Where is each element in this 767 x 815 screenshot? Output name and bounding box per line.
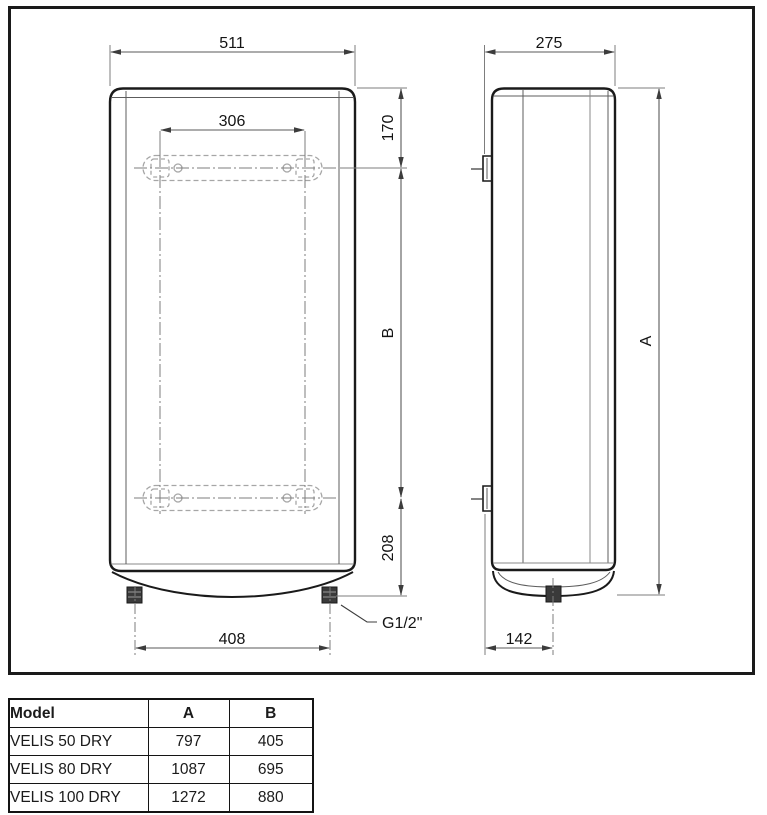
dim-a-value: 1272 — [148, 784, 229, 813]
dimension-drawing-page: 511 306 170 B 208 408 G1/2" — [0, 0, 767, 815]
dim-a-value: 797 — [148, 728, 229, 756]
column-header-model: Model — [9, 699, 148, 728]
model-dimensions-table: Model A B VELIS 50 DRY 797 405 VELIS 80 … — [8, 698, 314, 813]
pipe-offset-dim-label: 142 — [506, 631, 533, 648]
table-header-row: Model A B — [9, 699, 313, 728]
model-name: VELIS 100 DRY — [9, 784, 148, 813]
column-header-b: B — [229, 699, 313, 728]
side-upper-wall-bracket — [471, 156, 491, 181]
technical-drawing: 511 306 170 B 208 408 G1/2" — [0, 0, 767, 692]
front-width-dim-label: 511 — [219, 35, 245, 52]
side-view — [471, 89, 615, 603]
side-height-dim-label: A — [638, 335, 655, 346]
side-lower-wall-bracket — [471, 486, 491, 511]
front-body-outline — [110, 89, 355, 572]
column-header-a: A — [148, 699, 229, 728]
side-body-outline — [492, 89, 615, 571]
pipe-thread-callout: G1/2" — [382, 615, 422, 632]
side-bottom-inner-curve — [498, 572, 610, 587]
table-row: VELIS 50 DRY 797 405 — [9, 728, 313, 756]
side-depth-dim-label: 275 — [536, 35, 563, 52]
table-row: VELIS 80 DRY 1087 695 — [9, 756, 313, 784]
table-row: VELIS 100 DRY 1272 880 — [9, 784, 313, 813]
top-to-bracket-dim-label: 170 — [380, 115, 397, 142]
front-bottom-curve — [112, 572, 353, 597]
bracket-to-bottom-dim-label: 208 — [380, 535, 397, 562]
dim-b-value: 695 — [229, 756, 313, 784]
pipe-thread-leader — [341, 605, 377, 622]
dim-b-value: 880 — [229, 784, 313, 813]
bracket-spacing-dim-label: 306 — [219, 113, 246, 130]
pipe-spacing-dim-label: 408 — [219, 631, 246, 648]
model-name: VELIS 50 DRY — [9, 728, 148, 756]
dim-b-value: 405 — [229, 728, 313, 756]
bracket-span-dim-label: B — [380, 328, 397, 339]
front-view — [110, 89, 355, 656]
model-name: VELIS 80 DRY — [9, 756, 148, 784]
dim-a-value: 1087 — [148, 756, 229, 784]
